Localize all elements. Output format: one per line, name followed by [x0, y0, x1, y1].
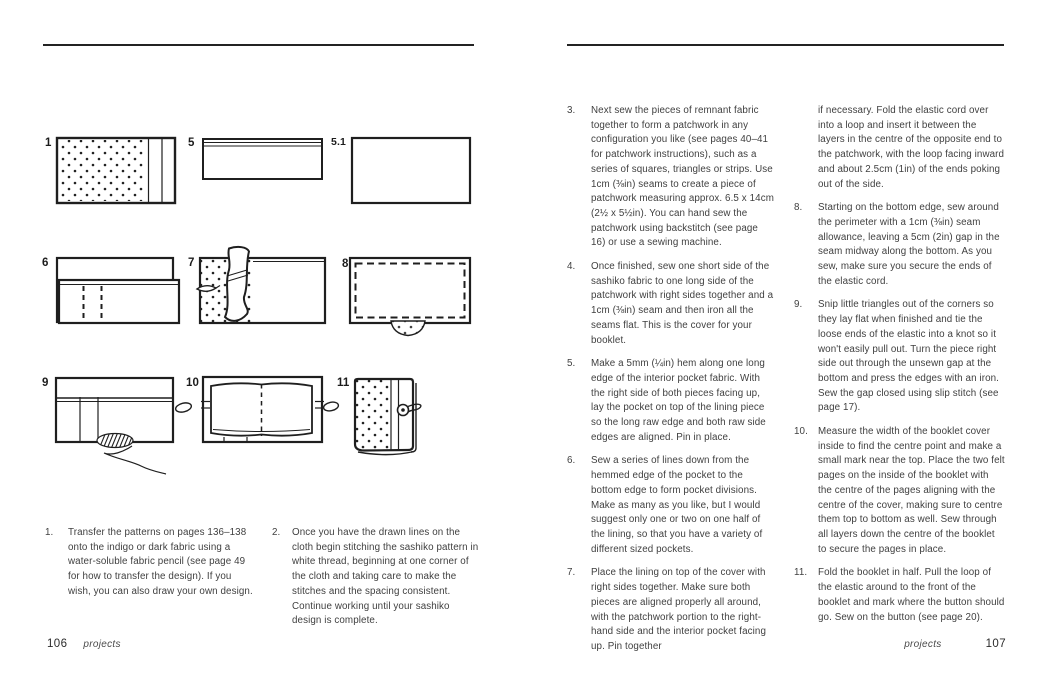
left-page-number: 106 [47, 637, 67, 652]
step-10-number: 10. [794, 425, 818, 557]
figure-7-fold-with-elastic: 7 [188, 247, 325, 323]
step-2-number: 2. [272, 526, 292, 629]
figure-5-1-lining-rect: 5.1 [331, 136, 470, 203]
step-4-number: 4. [567, 260, 591, 348]
figure-8-perimeter-seam: 8 [342, 258, 470, 336]
book-spread: { "left_page": { "page_number": "106", "… [0, 0, 1050, 689]
step-9-number: 9. [794, 298, 818, 416]
step-8-number: 8. [794, 201, 818, 289]
step-6-number: 6. [567, 454, 591, 557]
right-page-number: 107 [986, 637, 1006, 652]
step-7-continuation: if necessary. Fold the elastic cord over… [794, 104, 1005, 192]
step-2: 2. Once you have the drawn lines on the … [272, 526, 480, 629]
step-7-number: 7. [567, 566, 591, 654]
figure-6-pocket-divisions: 6 [42, 257, 179, 323]
figure-10-label: 10 [186, 377, 199, 389]
figure-11-finished-booklet: 11 [337, 377, 421, 455]
step-9-text: Snip little triangles out of the corners… [818, 298, 1005, 416]
step-10-text: Measure the width of the booklet cover i… [818, 425, 1005, 557]
figure-10-open-booklet: 10 [186, 377, 339, 442]
step-4-text: Once finished, sew one short side of the… [591, 260, 775, 348]
right-page-column-1: 3. Next sew the pieces of remnant fabric… [567, 104, 775, 664]
step-7: 7. Place the lining on top of the cover … [567, 566, 775, 654]
step-6: 6. Sew a series of lines down from the h… [567, 454, 775, 557]
figure-1-sashiko-panel: 1 [45, 137, 175, 203]
step-5: 5. Make a 5mm (¼in) hem along one long e… [567, 357, 775, 445]
step-8-text: Starting on the bottom edge, sew around … [818, 201, 1005, 289]
step-1-text: Transfer the patterns on pages 136–138 o… [68, 526, 253, 600]
left-page-footer: 106 projects [47, 637, 121, 653]
step-6-text: Sew a series of lines down from the hemm… [591, 454, 775, 557]
figure-6-label: 6 [42, 257, 49, 269]
step-5-number: 5. [567, 357, 591, 445]
step-2-text: Once you have the drawn lines on the clo… [292, 526, 480, 629]
step-11-number: 11. [794, 566, 818, 625]
step-3: 3. Next sew the pieces of remnant fabric… [567, 104, 775, 251]
step-7-text: Place the lining on top of the cover wit… [591, 566, 775, 654]
figure-5-label: 5 [188, 137, 195, 149]
left-page-steps-column-1: 1. Transfer the patterns on pages 136–13… [45, 526, 253, 609]
figure-5-1-label: 5.1 [331, 136, 346, 148]
figure-5-hemmed-strip: 5 [188, 137, 322, 179]
right-page-footer: projects 107 [904, 637, 1006, 653]
left-section-label: projects [83, 638, 120, 653]
step-11-text: Fold the booklet in half. Pull the loop … [818, 566, 1005, 625]
figure-7-label: 7 [188, 257, 195, 269]
step-10: 10. Measure the width of the booklet cov… [794, 425, 1005, 557]
step-5-text: Make a 5mm (¼in) hem along one long edge… [591, 357, 775, 445]
step-1: 1. Transfer the patterns on pages 136–13… [45, 526, 253, 600]
figure-11-label: 11 [337, 377, 350, 389]
step-3-text: Next sew the pieces of remnant fabric to… [591, 104, 775, 251]
figure-9-slip-stitch: 9 [42, 377, 192, 474]
right-section-label: projects [904, 638, 941, 653]
figure-9-label: 9 [42, 377, 49, 389]
step-1-number: 1. [45, 526, 68, 600]
step-11: 11. Fold the booklet in half. Pull the l… [794, 566, 1005, 625]
figure-8-label: 8 [342, 258, 349, 270]
step-4: 4. Once finished, sew one short side of … [567, 260, 775, 348]
step-9: 9. Snip little triangles out of the corn… [794, 298, 1005, 416]
step-3-number: 3. [567, 104, 591, 251]
figure-1-label: 1 [45, 137, 52, 149]
left-page-steps-column-2: 2. Once you have the drawn lines on the … [272, 526, 480, 638]
step-8: 8. Starting on the bottom edge, sew arou… [794, 201, 1005, 289]
right-page-column-2: if necessary. Fold the elastic cord over… [794, 104, 1005, 634]
